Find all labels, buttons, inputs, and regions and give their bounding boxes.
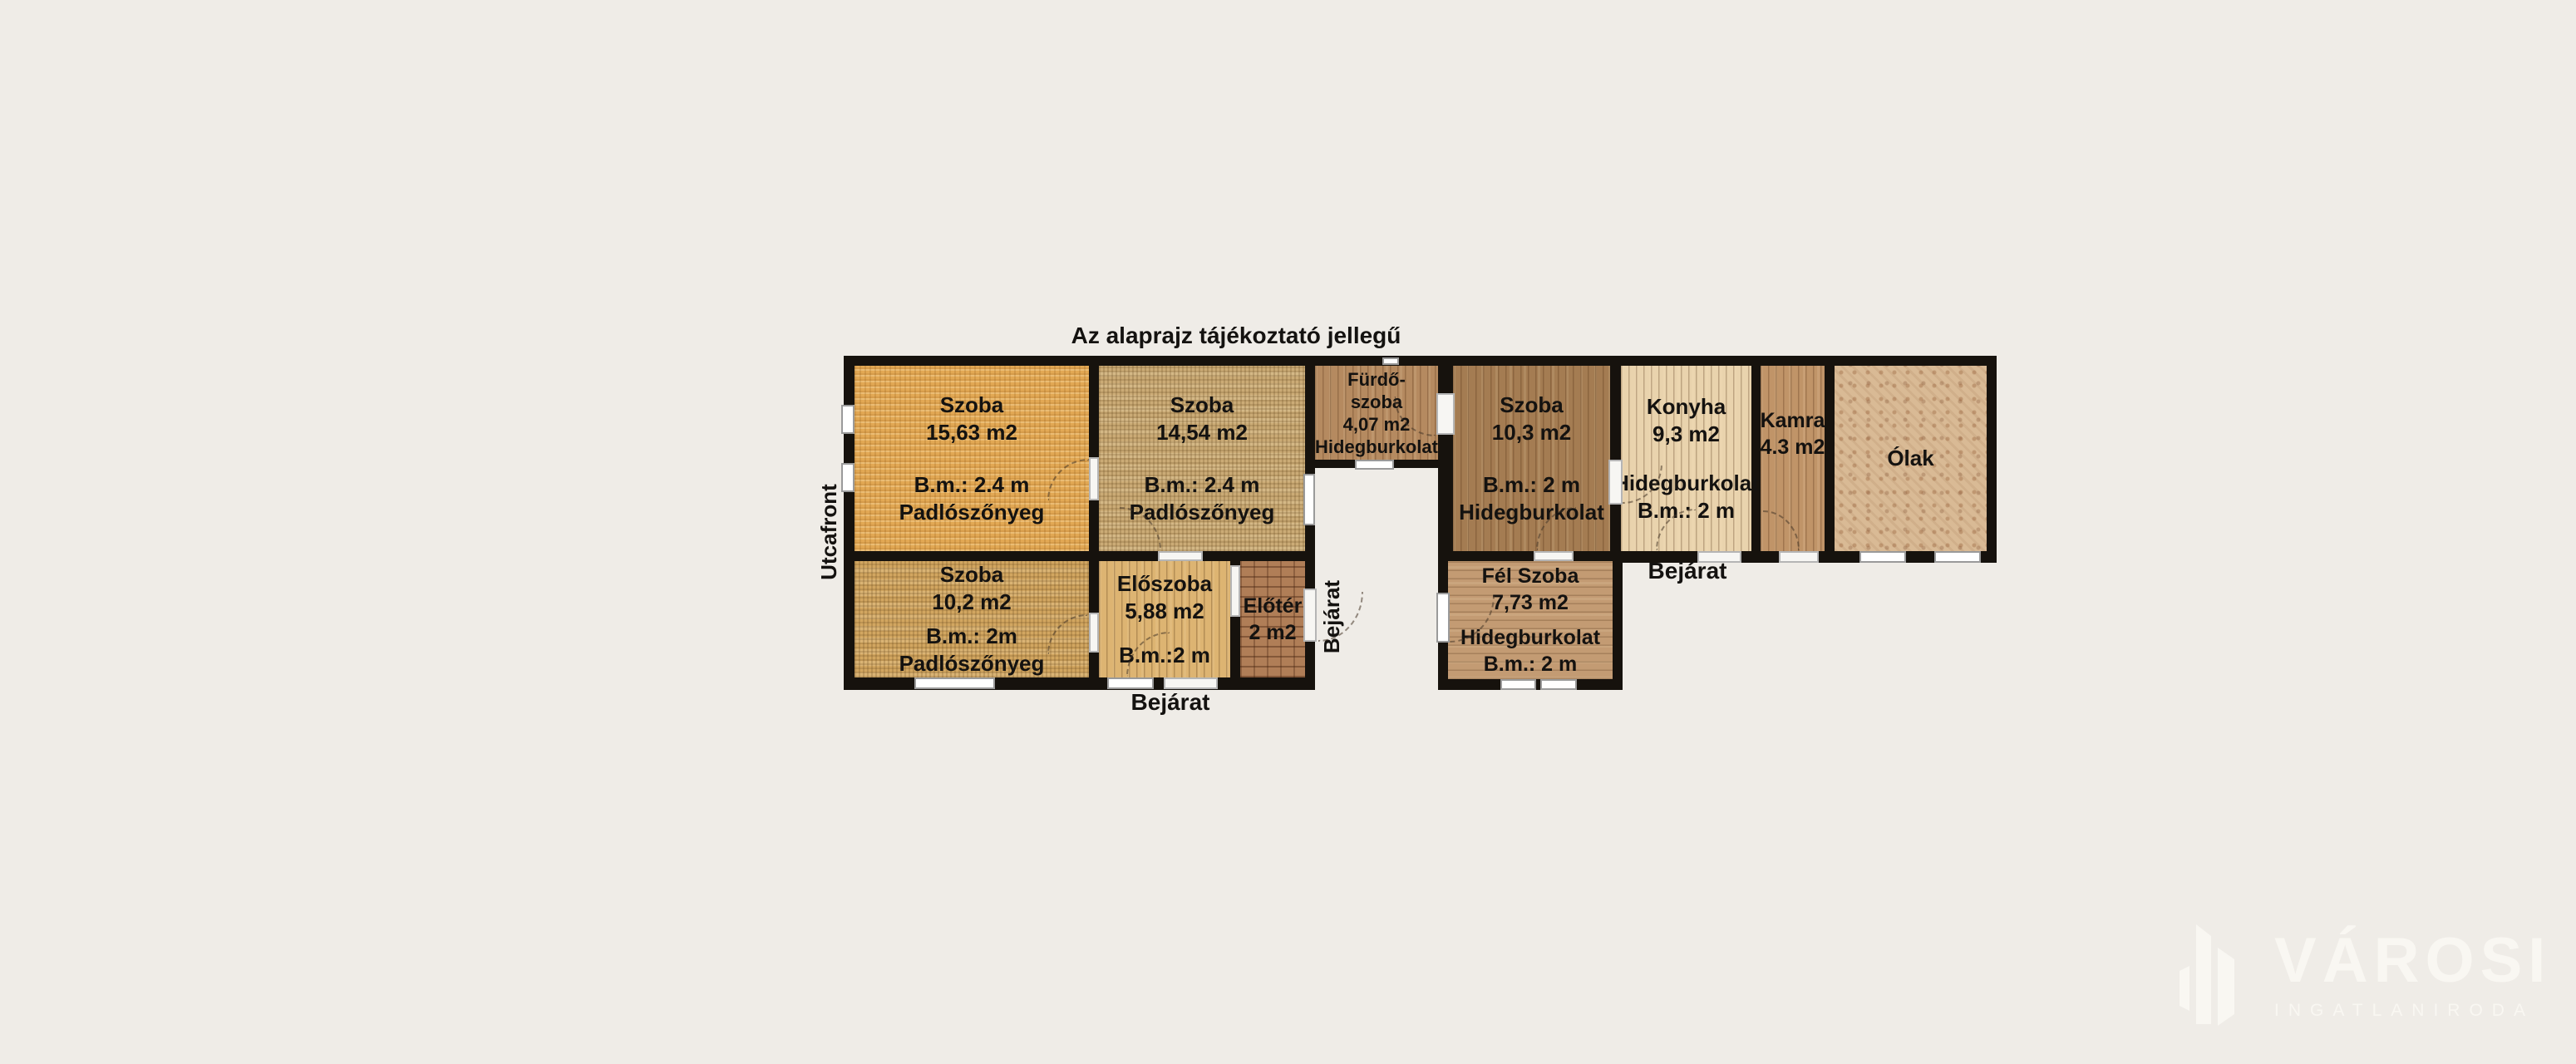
door-szoba103-felszoba (1534, 551, 1574, 561)
door-swing-arc (1318, 592, 1363, 642)
room-olak: Ólak (1835, 366, 1987, 551)
room-ceiling-height: B.m.: 2 m (1484, 651, 1578, 677)
room-label: Előtér 2 m2 (1240, 561, 1305, 677)
room-name: Fürdő- (1347, 368, 1406, 391)
room-area: 9,3 m2 (1652, 421, 1720, 448)
window-szoba102-south (914, 677, 995, 689)
window-eloszoba-south (1107, 677, 1154, 689)
room-name: Szoba (1500, 392, 1564, 419)
room-szoba-15-63: Szoba 15,63 m2 B.m.: 2.4 m Padlószőnyeg (855, 366, 1089, 551)
window-furdoszoba-north (1382, 357, 1399, 365)
brand-building-icon (2176, 919, 2253, 1029)
room-name: Szoba (940, 392, 1004, 419)
room-ceiling-height: B.m.: 2m (926, 623, 1017, 650)
room-area: 2 m2 (1249, 619, 1297, 646)
label-utcafront: Utcafront (815, 441, 843, 623)
window-furdoszoba-south (1355, 460, 1394, 470)
room-ceiling-height: B.m.: 2.4 m (914, 471, 1030, 499)
room-name: Konyha (1647, 393, 1726, 421)
room-floor-type: Padlószőnyeg (899, 650, 1045, 677)
door-eloter-courtyard (1303, 589, 1317, 642)
floor-plan: Szoba 15,63 m2 B.m.: 2.4 m Padlószőnyeg … (844, 356, 1999, 690)
room-name: Ólak (1887, 445, 1933, 472)
label-bejarat-main-entrance: Bejárat (1104, 689, 1237, 716)
room-label: Szoba 10,3 m2 B.m.: 2 m Hidegburkolat (1453, 366, 1610, 551)
room-area: 5,88 m2 (1125, 598, 1204, 625)
watermark: VÁROSI INGATLANIRODA (2176, 919, 2551, 1029)
room-szoba-10-2: Szoba 10,2 m2 B.m.: 2m Padlószőnyeg (855, 561, 1089, 677)
room-label: Szoba 10,2 m2 B.m.: 2m Padlószőnyeg (855, 561, 1089, 677)
room-floor-type: Hidegburkolat (1459, 499, 1604, 526)
door-szoba1563-szoba1454 (1089, 457, 1099, 500)
window-street-upper (841, 405, 855, 434)
door-szoba103-konyha (1608, 460, 1623, 505)
room-area: 4.3 m2 (1761, 434, 1825, 461)
room-name: Előszoba (1117, 570, 1212, 598)
room-label: Ólak (1835, 366, 1987, 551)
room-area: 14,54 m2 (1156, 419, 1248, 446)
window-olak-south-2 (1934, 551, 1981, 563)
page-background: { "title": "Az alaprajz tájékoztató jell… (0, 0, 2576, 1064)
window-olak-south-1 (1859, 551, 1906, 563)
door-kamra-entrance (1779, 551, 1819, 563)
brand-tagline: INGATLANIRODA (2274, 1001, 2551, 1021)
room-name: Szoba (940, 561, 1004, 589)
room-eloter: Előtér 2 m2 (1240, 561, 1305, 677)
room-name: Szoba (1170, 392, 1234, 419)
room-name: Előtér (1244, 593, 1303, 619)
brand-name: VÁROSI (2274, 928, 2551, 994)
room-area: 7,73 m2 (1492, 589, 1569, 616)
window-street-lower (841, 463, 855, 492)
room-name: Kamra (1761, 407, 1825, 434)
plan-disclaimer-title: Az alaprajz tájékoztató jellegű (1055, 323, 1417, 349)
room-szoba-10-3: Szoba 10,3 m2 B.m.: 2 m Hidegburkolat (1453, 366, 1610, 551)
window-felszoba-south-1 (1500, 679, 1536, 690)
room-floor-type: Hidegburkolat (1315, 436, 1438, 458)
room-area: 10,2 m2 (932, 589, 1011, 616)
room-ceiling-height: B.m.: 2.4 m (1145, 471, 1260, 499)
room-name: Fél Szoba (1482, 563, 1579, 589)
room-area: 15,63 m2 (926, 419, 1017, 446)
door-furdoszoba-szoba103 (1436, 393, 1455, 435)
window-felszoba-west (1436, 593, 1450, 643)
door-szoba1454-eloszoba (1158, 551, 1203, 561)
brand-text-block: VÁROSI INGATLANIRODA (2274, 928, 2551, 1021)
room-floor-type: Padlószőnyeg (899, 499, 1045, 526)
room-area: 10,3 m2 (1492, 419, 1571, 446)
door-szoba102-eloszoba (1089, 613, 1099, 653)
room-ceiling-height: B.m.: 2 m (1483, 471, 1580, 499)
opening-eloszoba-eloter (1230, 565, 1240, 617)
window-felszoba-south-2 (1540, 679, 1577, 690)
door-konyha-entrance (1697, 551, 1741, 563)
door-main-entrance (1164, 677, 1218, 689)
window-szoba1454-courtyard (1303, 474, 1315, 525)
room-label: Szoba 15,63 m2 B.m.: 2.4 m Padlószőnyeg (855, 366, 1089, 551)
